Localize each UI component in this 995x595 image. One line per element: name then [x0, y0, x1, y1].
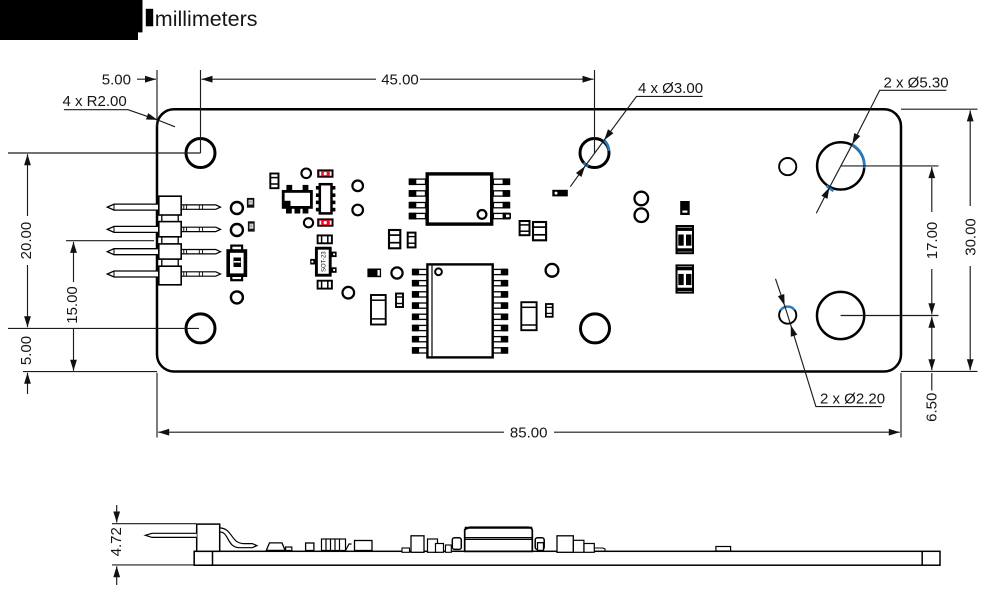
svg-text:SOT-23: SOT-23: [322, 251, 328, 272]
svg-text:4 x Ø3.00: 4 x Ø3.00: [638, 80, 703, 97]
svg-text:15.00: 15.00: [64, 286, 81, 324]
svg-text:6.50: 6.50: [924, 393, 941, 422]
svg-text:5.00: 5.00: [102, 71, 131, 88]
svg-text:30.00: 30.00: [962, 218, 979, 256]
svg-text:4 x R2.00: 4 x R2.00: [63, 93, 127, 110]
svg-text:85.00: 85.00: [510, 424, 548, 441]
svg-text:4.72: 4.72: [108, 527, 125, 556]
svg-text:2 x Ø2.20: 2 x Ø2.20: [820, 391, 885, 408]
svg-text:17.00: 17.00: [924, 222, 941, 260]
svg-text:2 x Ø5.30: 2 x Ø5.30: [884, 75, 949, 92]
svg-text:millimeters: millimeters: [155, 7, 258, 31]
svg-text:20.00: 20.00: [18, 222, 35, 260]
svg-text:45.00: 45.00: [381, 71, 419, 88]
svg-text:5.00: 5.00: [18, 336, 35, 365]
